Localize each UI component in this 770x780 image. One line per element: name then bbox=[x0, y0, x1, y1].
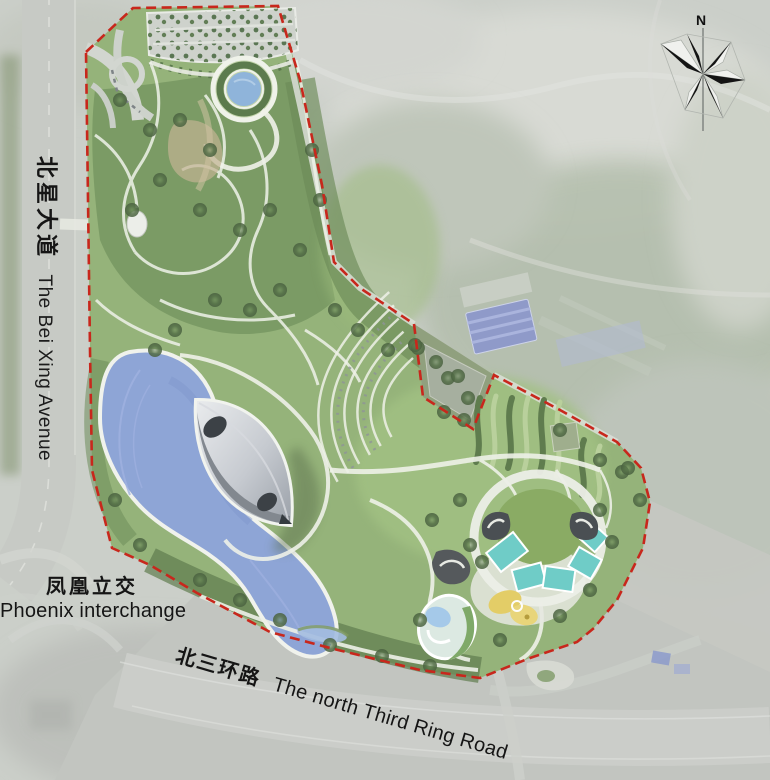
bei-xing-avenue-zh: 北星大道 bbox=[34, 156, 59, 260]
label-phoenix-interchange: 凤凰立交 Phoenix interchange bbox=[0, 570, 184, 623]
compass-rose-icon: N bbox=[653, 12, 753, 136]
bei-xing-avenue-en: The Bei Xing Avenue bbox=[34, 274, 55, 461]
masterplan-map: 北星大道 The Bei Xing Avenue 凤凰立交 Phoenix in… bbox=[0, 0, 770, 780]
label-bei-xing-avenue: 北星大道 The Bei Xing Avenue bbox=[32, 156, 64, 461]
compass-rose-graphic bbox=[653, 28, 753, 132]
compass-north-label: N bbox=[696, 12, 706, 28]
phoenix-interchange-en: Phoenix interchange bbox=[0, 600, 184, 623]
phoenix-interchange-zh: 凤凰立交 bbox=[0, 570, 184, 599]
